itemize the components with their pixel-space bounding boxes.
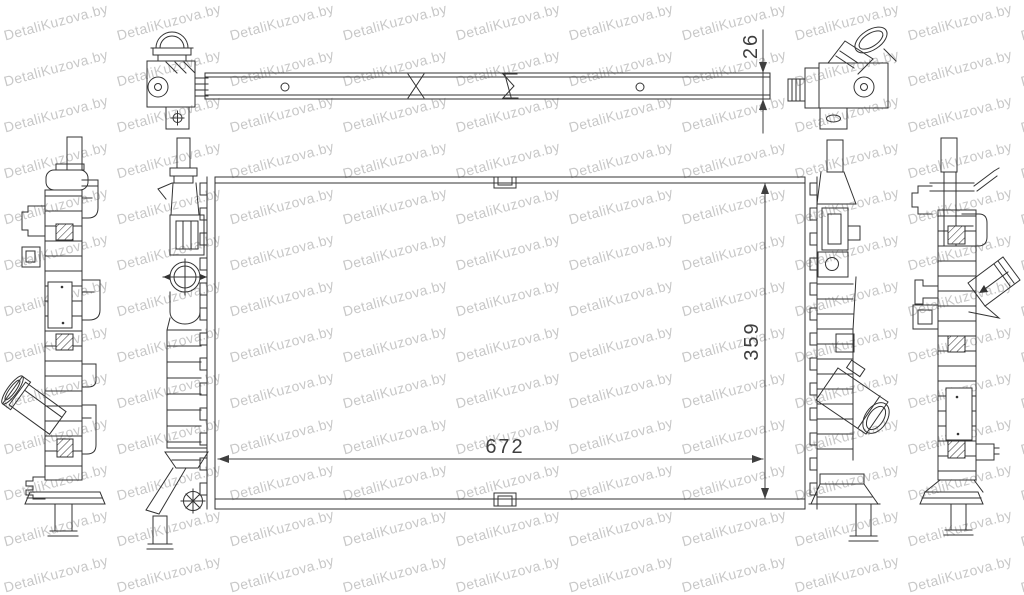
joint-tab: [200, 183, 207, 195]
joint-tab: [810, 208, 817, 220]
joint-tab: [200, 483, 207, 495]
top-view-right-mount: [788, 22, 896, 129]
joint-tab: [810, 258, 817, 270]
sensor-port: [818, 252, 848, 277]
joint-tab: [200, 433, 207, 445]
filler-cap: [850, 22, 891, 58]
joint-tab: [200, 333, 207, 345]
joint-tab: [810, 358, 817, 370]
clip-hook: [82, 405, 96, 454]
mount-hole: [636, 83, 644, 91]
filler-neck: [177, 138, 190, 168]
joint-tab: [810, 183, 817, 195]
vent-tube: [827, 140, 843, 172]
joint-mark: [408, 74, 424, 98]
joint-mark: [503, 74, 518, 98]
joint-tab: [810, 408, 817, 420]
top-view-bar: [205, 73, 770, 99]
dim-width: 672: [218, 436, 763, 463]
joint-tab: [810, 283, 817, 295]
top-view-left-mount: [147, 32, 208, 129]
front-view: 359 672: [146, 138, 895, 549]
dim-height: 359: [741, 183, 769, 499]
top-view: 26: [147, 22, 896, 133]
joint-tab: [810, 233, 817, 245]
clip-hook: [82, 364, 96, 387]
dim-width-label: 672: [485, 436, 524, 458]
joint-tab: [810, 308, 817, 320]
joint-tab: [200, 383, 207, 395]
joint-tab: [810, 458, 817, 470]
joint-tab: [200, 283, 207, 295]
technical-drawing: 26: [0, 0, 1024, 559]
right-side-view: [912, 138, 1020, 535]
clip-hook: [82, 280, 100, 320]
right-tank: [809, 140, 895, 541]
mount-hole: [281, 83, 289, 91]
left-tank: [146, 138, 208, 549]
joint-tab: [810, 433, 817, 445]
left-side-view: [0, 137, 105, 536]
radiator-drawing-page: DetaliKuzova.byDetaliKuzova.byDetaliKuzo…: [0, 0, 1024, 559]
joint-tab: [200, 358, 207, 370]
lower-hose: [0, 373, 68, 436]
dim-thickness: 26: [740, 30, 767, 133]
dim-thickness-label: 26: [740, 33, 762, 59]
joint-tab: [200, 308, 207, 320]
outlet-hose: [816, 368, 888, 434]
joint-tab: [200, 258, 207, 270]
joint-tab: [810, 383, 817, 395]
joint-tab: [810, 333, 817, 345]
dim-height-label: 359: [741, 321, 763, 360]
clip-hook: [962, 214, 987, 246]
clip-hook: [82, 180, 98, 218]
